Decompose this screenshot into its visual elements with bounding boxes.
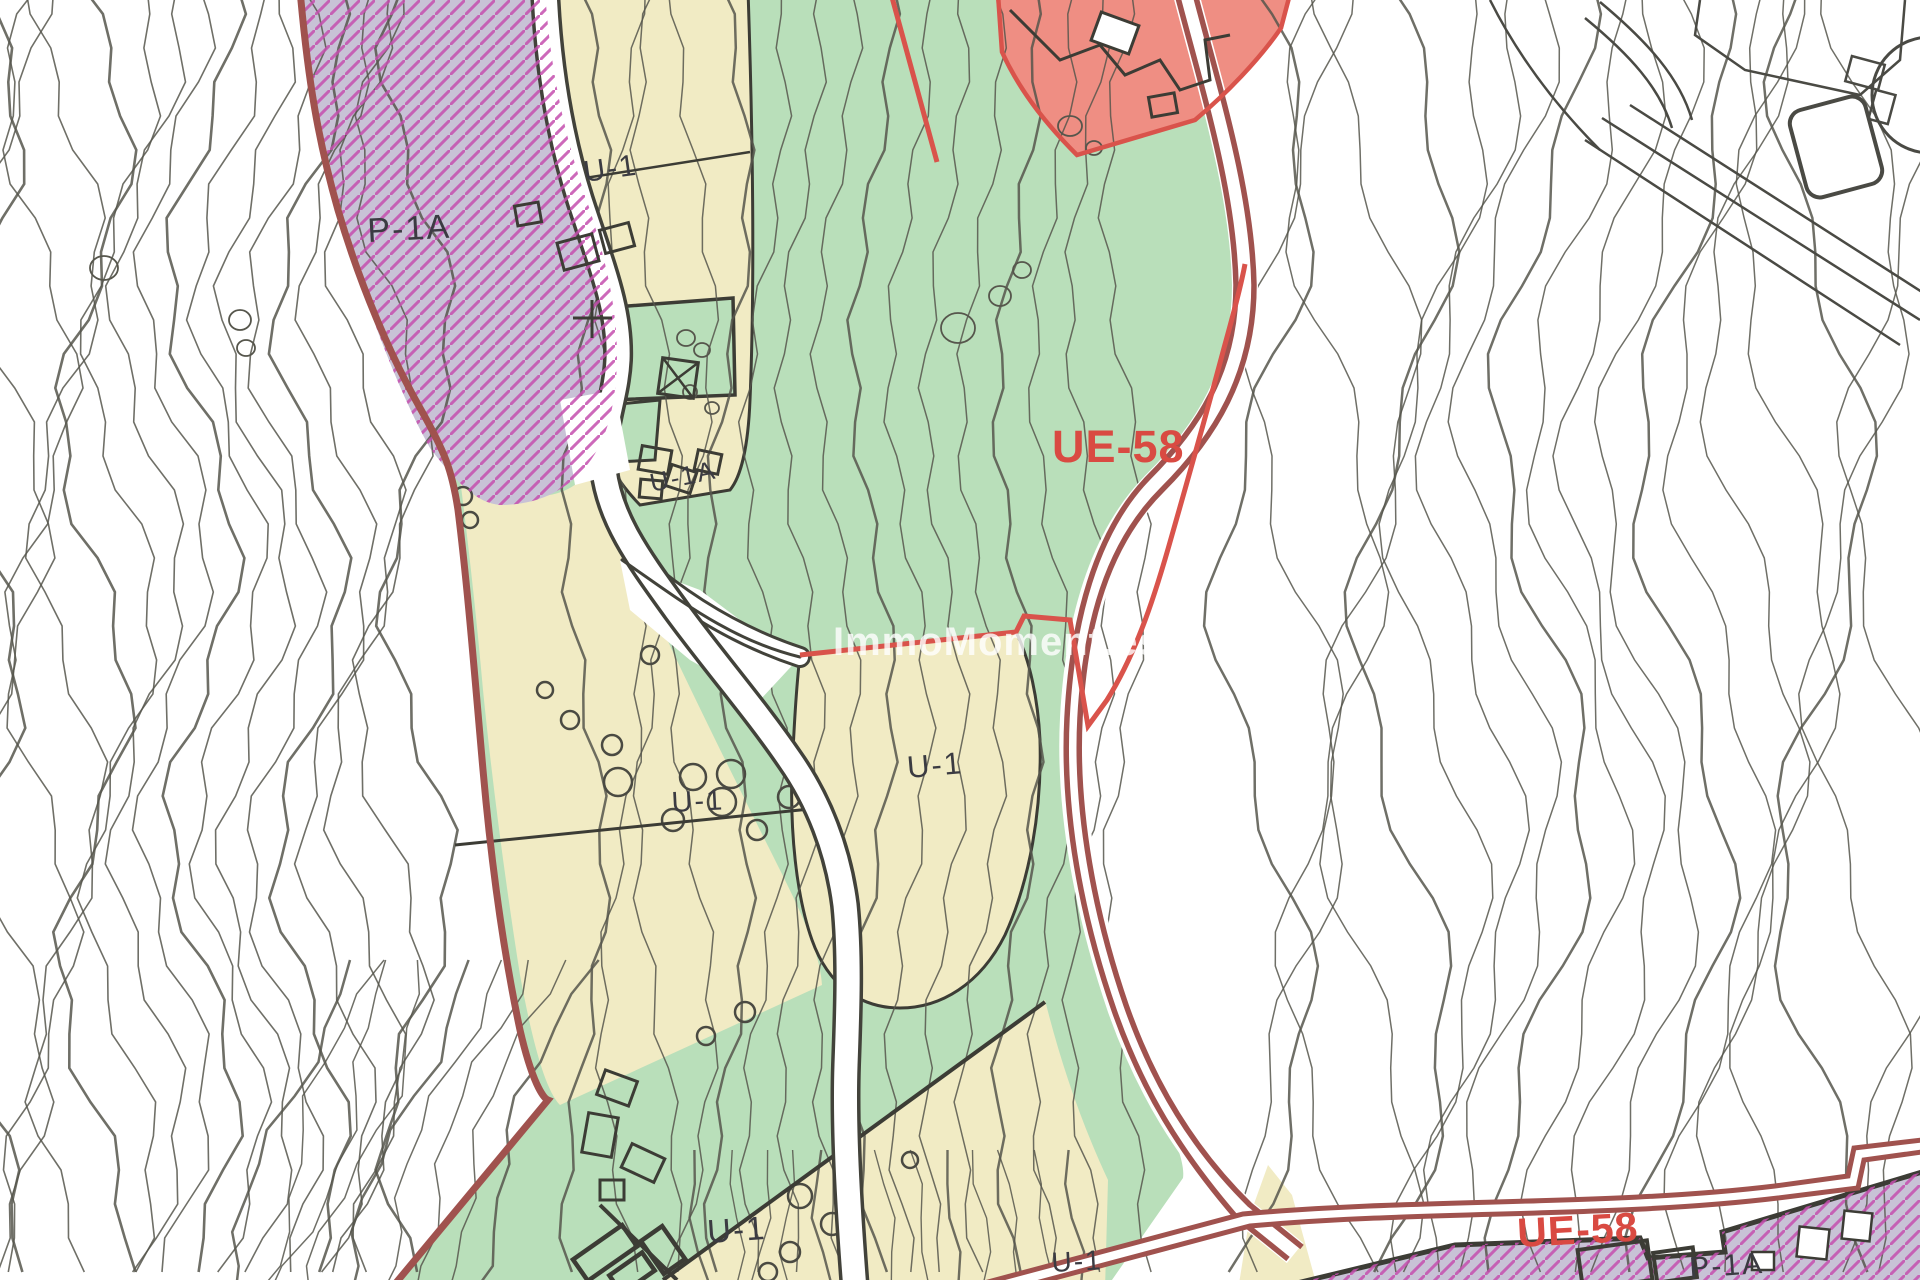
watermark: ImmoMoment.es	[833, 620, 1162, 664]
zoning-map: P-1A U-1 U-1A UE-58 U-1 U-1 U-1 U-1 UE-5…	[0, 0, 1920, 1280]
zone-label-u1-bottom: U-1	[706, 1209, 768, 1250]
zone-label-u1-bottom-right: U-1	[1051, 1244, 1104, 1278]
zoning-map-canvas: P-1A U-1 U-1A UE-58 U-1 U-1 U-1 U-1 UE-5…	[0, 0, 1920, 1280]
zone-label-p1a-top: P-1A	[366, 208, 451, 250]
zone-label-u1-center: U-1	[906, 745, 965, 785]
zone-label-ue58-bottom: UE-58	[1516, 1204, 1639, 1256]
zone-label-ue58-main: UE-58	[1052, 421, 1185, 472]
zone-label-u1-left: U-1	[671, 784, 725, 819]
zone-label-p1a-bottom: P-1A	[1688, 1247, 1765, 1280]
